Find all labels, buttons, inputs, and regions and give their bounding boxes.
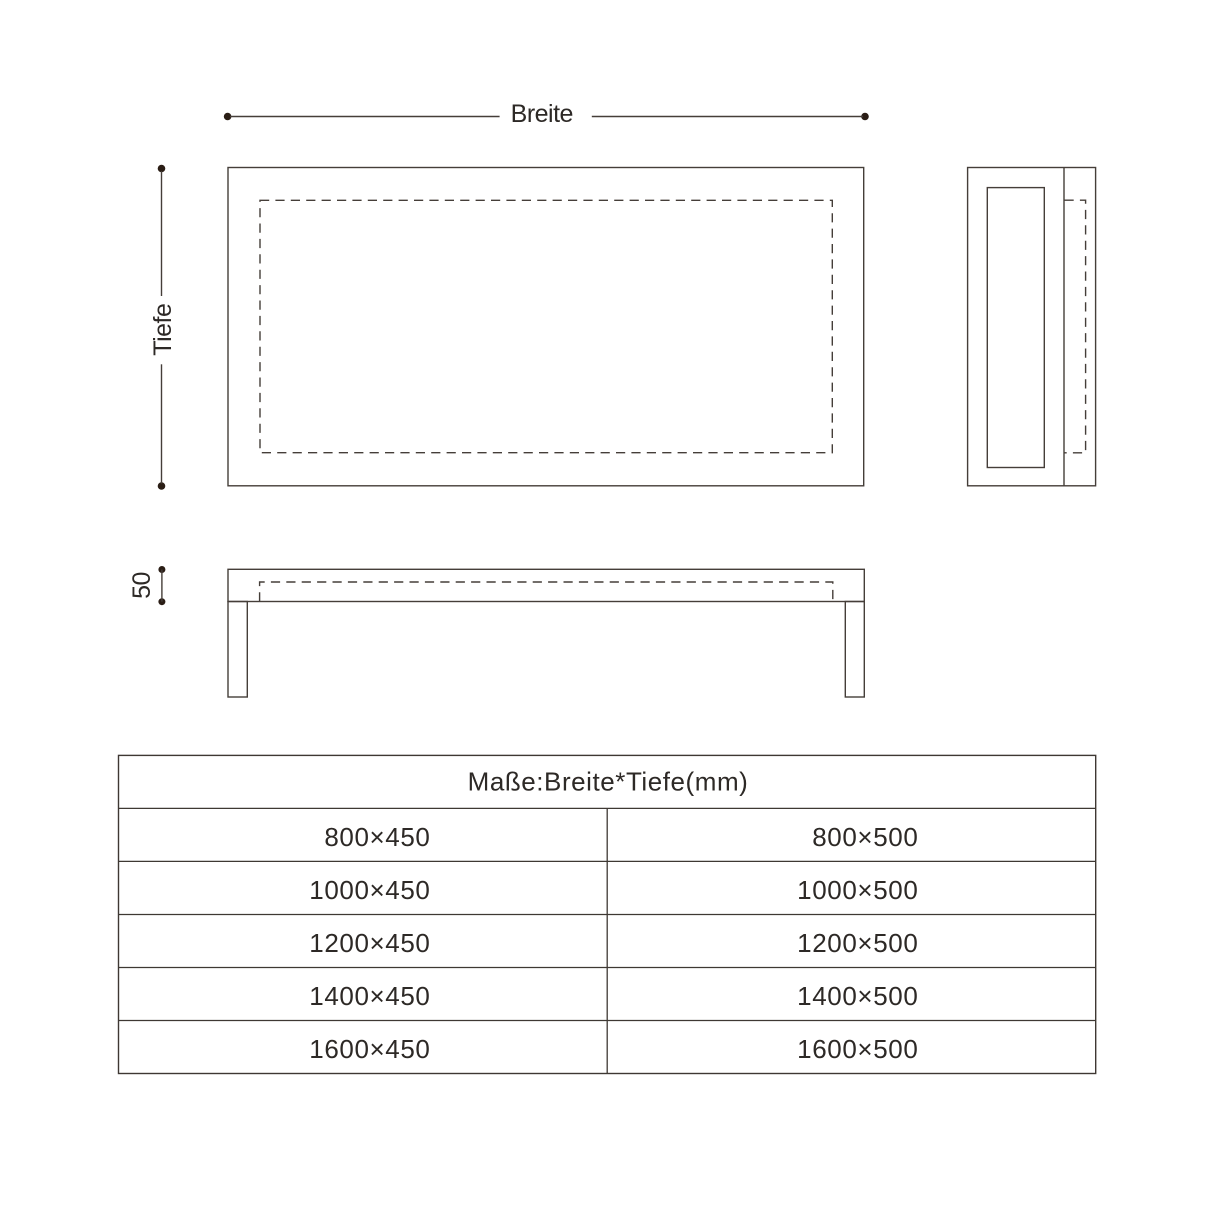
svg-text:1600×450: 1600×450 bbox=[309, 1034, 430, 1064]
svg-text:800×500: 800×500 bbox=[812, 822, 918, 852]
svg-text:1400×500: 1400×500 bbox=[797, 981, 918, 1011]
svg-text:1200×450: 1200×450 bbox=[309, 928, 430, 958]
svg-text:1000×500: 1000×500 bbox=[797, 875, 918, 905]
svg-text:Maße:Breite*Tiefe(mm): Maße:Breite*Tiefe(mm) bbox=[468, 767, 749, 797]
svg-text:Tiefe: Tiefe bbox=[149, 304, 177, 356]
svg-text:1600×500: 1600×500 bbox=[797, 1034, 918, 1064]
svg-text:1200×500: 1200×500 bbox=[797, 928, 918, 958]
svg-text:1000×450: 1000×450 bbox=[309, 875, 430, 905]
svg-text:1400×450: 1400×450 bbox=[309, 981, 430, 1011]
svg-text:Breite: Breite bbox=[511, 100, 573, 128]
svg-text:800×450: 800×450 bbox=[324, 822, 430, 852]
svg-text:50: 50 bbox=[128, 572, 156, 599]
